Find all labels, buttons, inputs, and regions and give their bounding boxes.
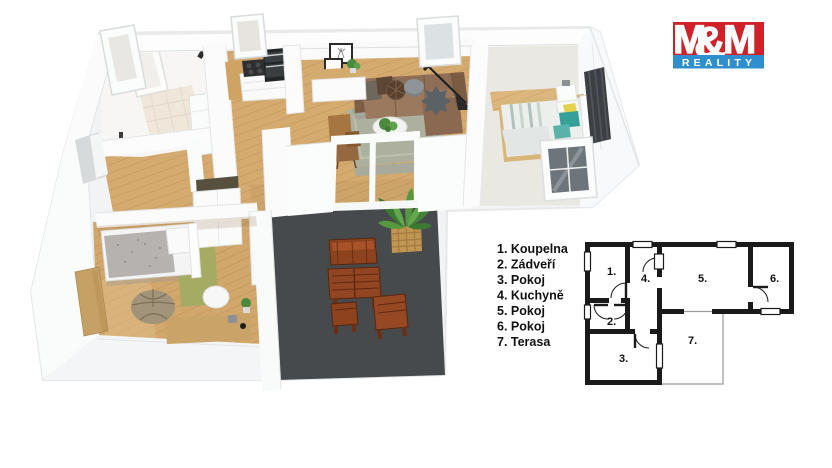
svg-text:5. Pokoj: 5. Pokoj bbox=[497, 304, 545, 318]
svg-text:3.: 3. bbox=[619, 353, 628, 365]
svg-text:2. Zádveří: 2. Zádveří bbox=[497, 258, 556, 272]
svg-text:2.: 2. bbox=[607, 316, 616, 328]
svg-text:7. Terasa: 7. Terasa bbox=[497, 335, 551, 349]
svg-text:REALITY: REALITY bbox=[682, 57, 756, 69]
svg-text:5.: 5. bbox=[698, 273, 707, 285]
svg-text:6.: 6. bbox=[770, 273, 779, 285]
svg-text:3. Pokoj: 3. Pokoj bbox=[497, 273, 545, 287]
svg-text:4. Kuchyně: 4. Kuchyně bbox=[497, 289, 564, 303]
svg-text:6. Pokoj: 6. Pokoj bbox=[497, 320, 545, 334]
svg-text:1.: 1. bbox=[607, 266, 616, 278]
svg-text:1. Koupelna: 1. Koupelna bbox=[497, 242, 569, 256]
svg-text:4.: 4. bbox=[641, 273, 650, 285]
svg-text:7.: 7. bbox=[688, 335, 697, 347]
